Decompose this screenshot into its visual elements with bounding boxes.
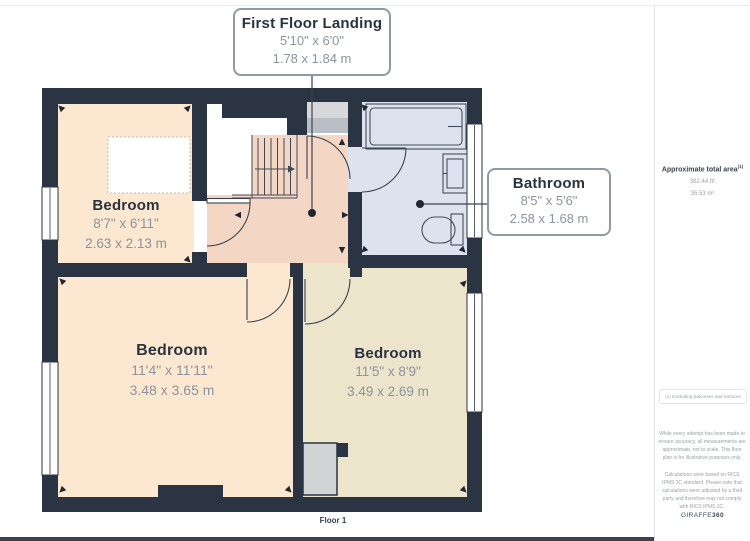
sidebar: Approximate total area(1) 382.44 ft² 35.… — [654, 6, 750, 541]
floor-plan-page: First Floor Landing 5'10" x 6'0" 1.78 x … — [0, 0, 750, 541]
window-bedroom-top-left — [42, 187, 58, 240]
callout-landing-metric: 1.78 x 1.84 m — [241, 50, 383, 68]
floor-plan-canvas — [0, 0, 750, 541]
bathroom-door-threshold — [348, 147, 362, 192]
window-bedroom-bottom-right — [467, 293, 482, 412]
approximate-area-block: Approximate total area(1) 382.44 ft² 35.… — [655, 164, 750, 197]
chimney-block-right — [303, 443, 337, 495]
callout-bathroom-metric: 2.58 x 1.68 m — [495, 210, 603, 228]
window-bedroom-bottom-left — [42, 362, 58, 475]
bathroom-floor — [362, 102, 468, 255]
callout-landing-imperial: 5'10" x 6'0" — [241, 32, 383, 50]
window-bathroom — [467, 124, 482, 238]
floor-label: Floor 1 — [293, 516, 373, 525]
callout-bathroom-imperial: 8'5" x 5'6" — [495, 192, 603, 210]
callout-landing-title: First Floor Landing — [241, 15, 383, 32]
disclaimer-calculations: Calculations were based on RICS IPMS 3C … — [658, 471, 746, 511]
viewer-bottom-bar — [0, 537, 654, 541]
bedroom-bottom-left-threshold — [247, 263, 290, 277]
area-ft: 382.44 ft² — [655, 179, 750, 185]
callout-bathroom: Bathroom 8'5" x 5'6" 2.58 x 1.68 m — [487, 168, 611, 236]
disclaimer-accuracy: While every attempt has been made to ens… — [658, 430, 746, 462]
landing-leader-dot — [308, 209, 316, 217]
chimney-breast-left — [158, 485, 223, 497]
area-m: 35.53 m² — [655, 191, 750, 197]
area-footnote-marker: (1) — [738, 164, 744, 169]
bathroom-leader-dot — [416, 200, 424, 208]
giraffe360-logo: GIRAFFE360 — [655, 512, 750, 519]
area-title: Approximate total area(1) — [655, 164, 750, 173]
callout-first-floor-landing: First Floor Landing 5'10" x 6'0" 1.78 x … — [233, 8, 391, 76]
skylight-outline — [108, 137, 190, 193]
bedroom-bottom-left-floor — [57, 277, 293, 497]
callout-bathroom-title: Bathroom — [495, 175, 603, 192]
area-footnote: (1) Excluding balconies and terraces — [659, 389, 747, 404]
